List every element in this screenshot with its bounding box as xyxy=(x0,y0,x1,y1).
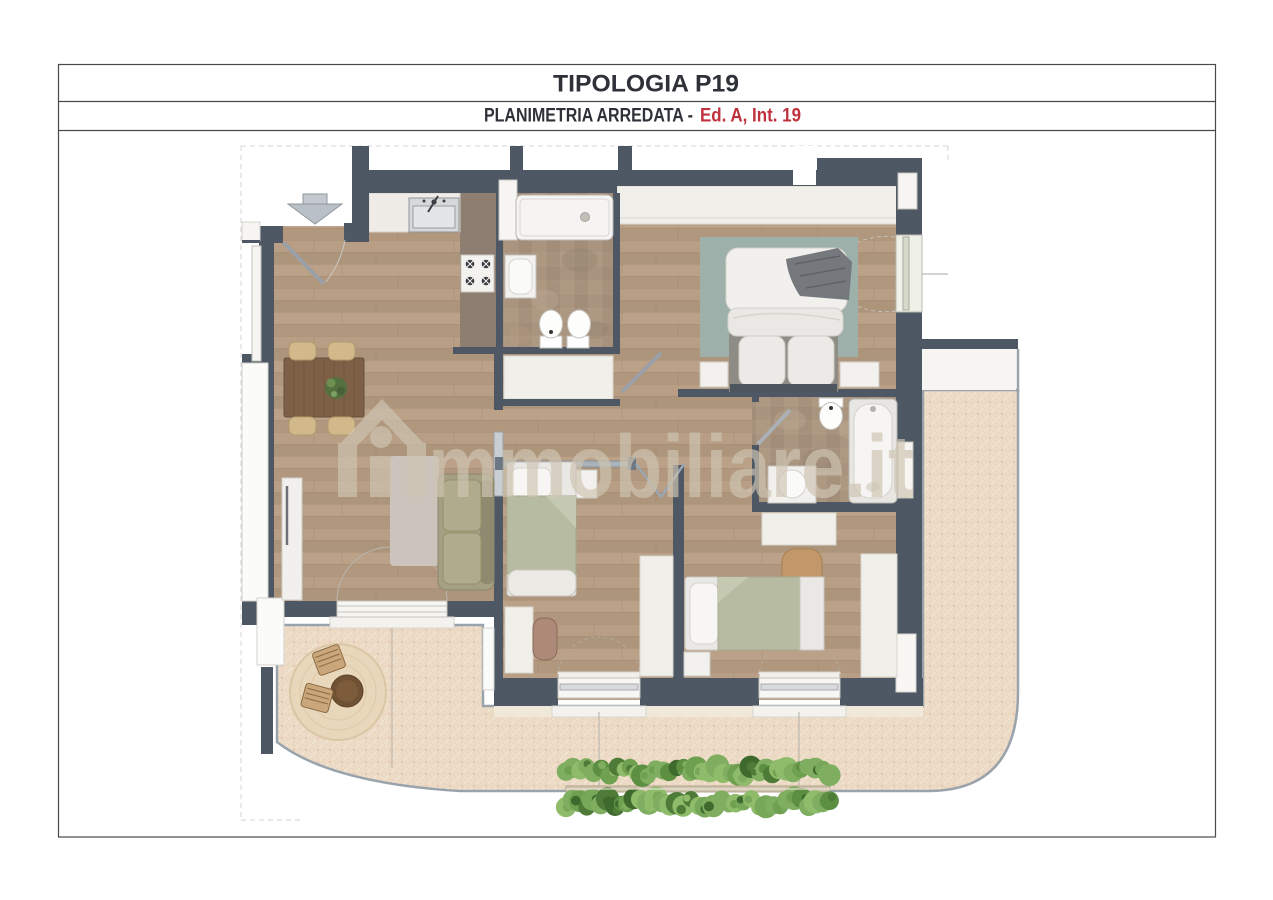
svg-text:PLANIMETRIA ARREDATA -: PLANIMETRIA ARREDATA - xyxy=(484,106,693,127)
svg-text:mmobiliare.it: mmobiliare.it xyxy=(428,416,914,516)
svg-text:Ed. A, Int. 19: Ed. A, Int. 19 xyxy=(700,106,801,127)
svg-text:TIPOLOGIA P19: TIPOLOGIA P19 xyxy=(553,71,739,98)
